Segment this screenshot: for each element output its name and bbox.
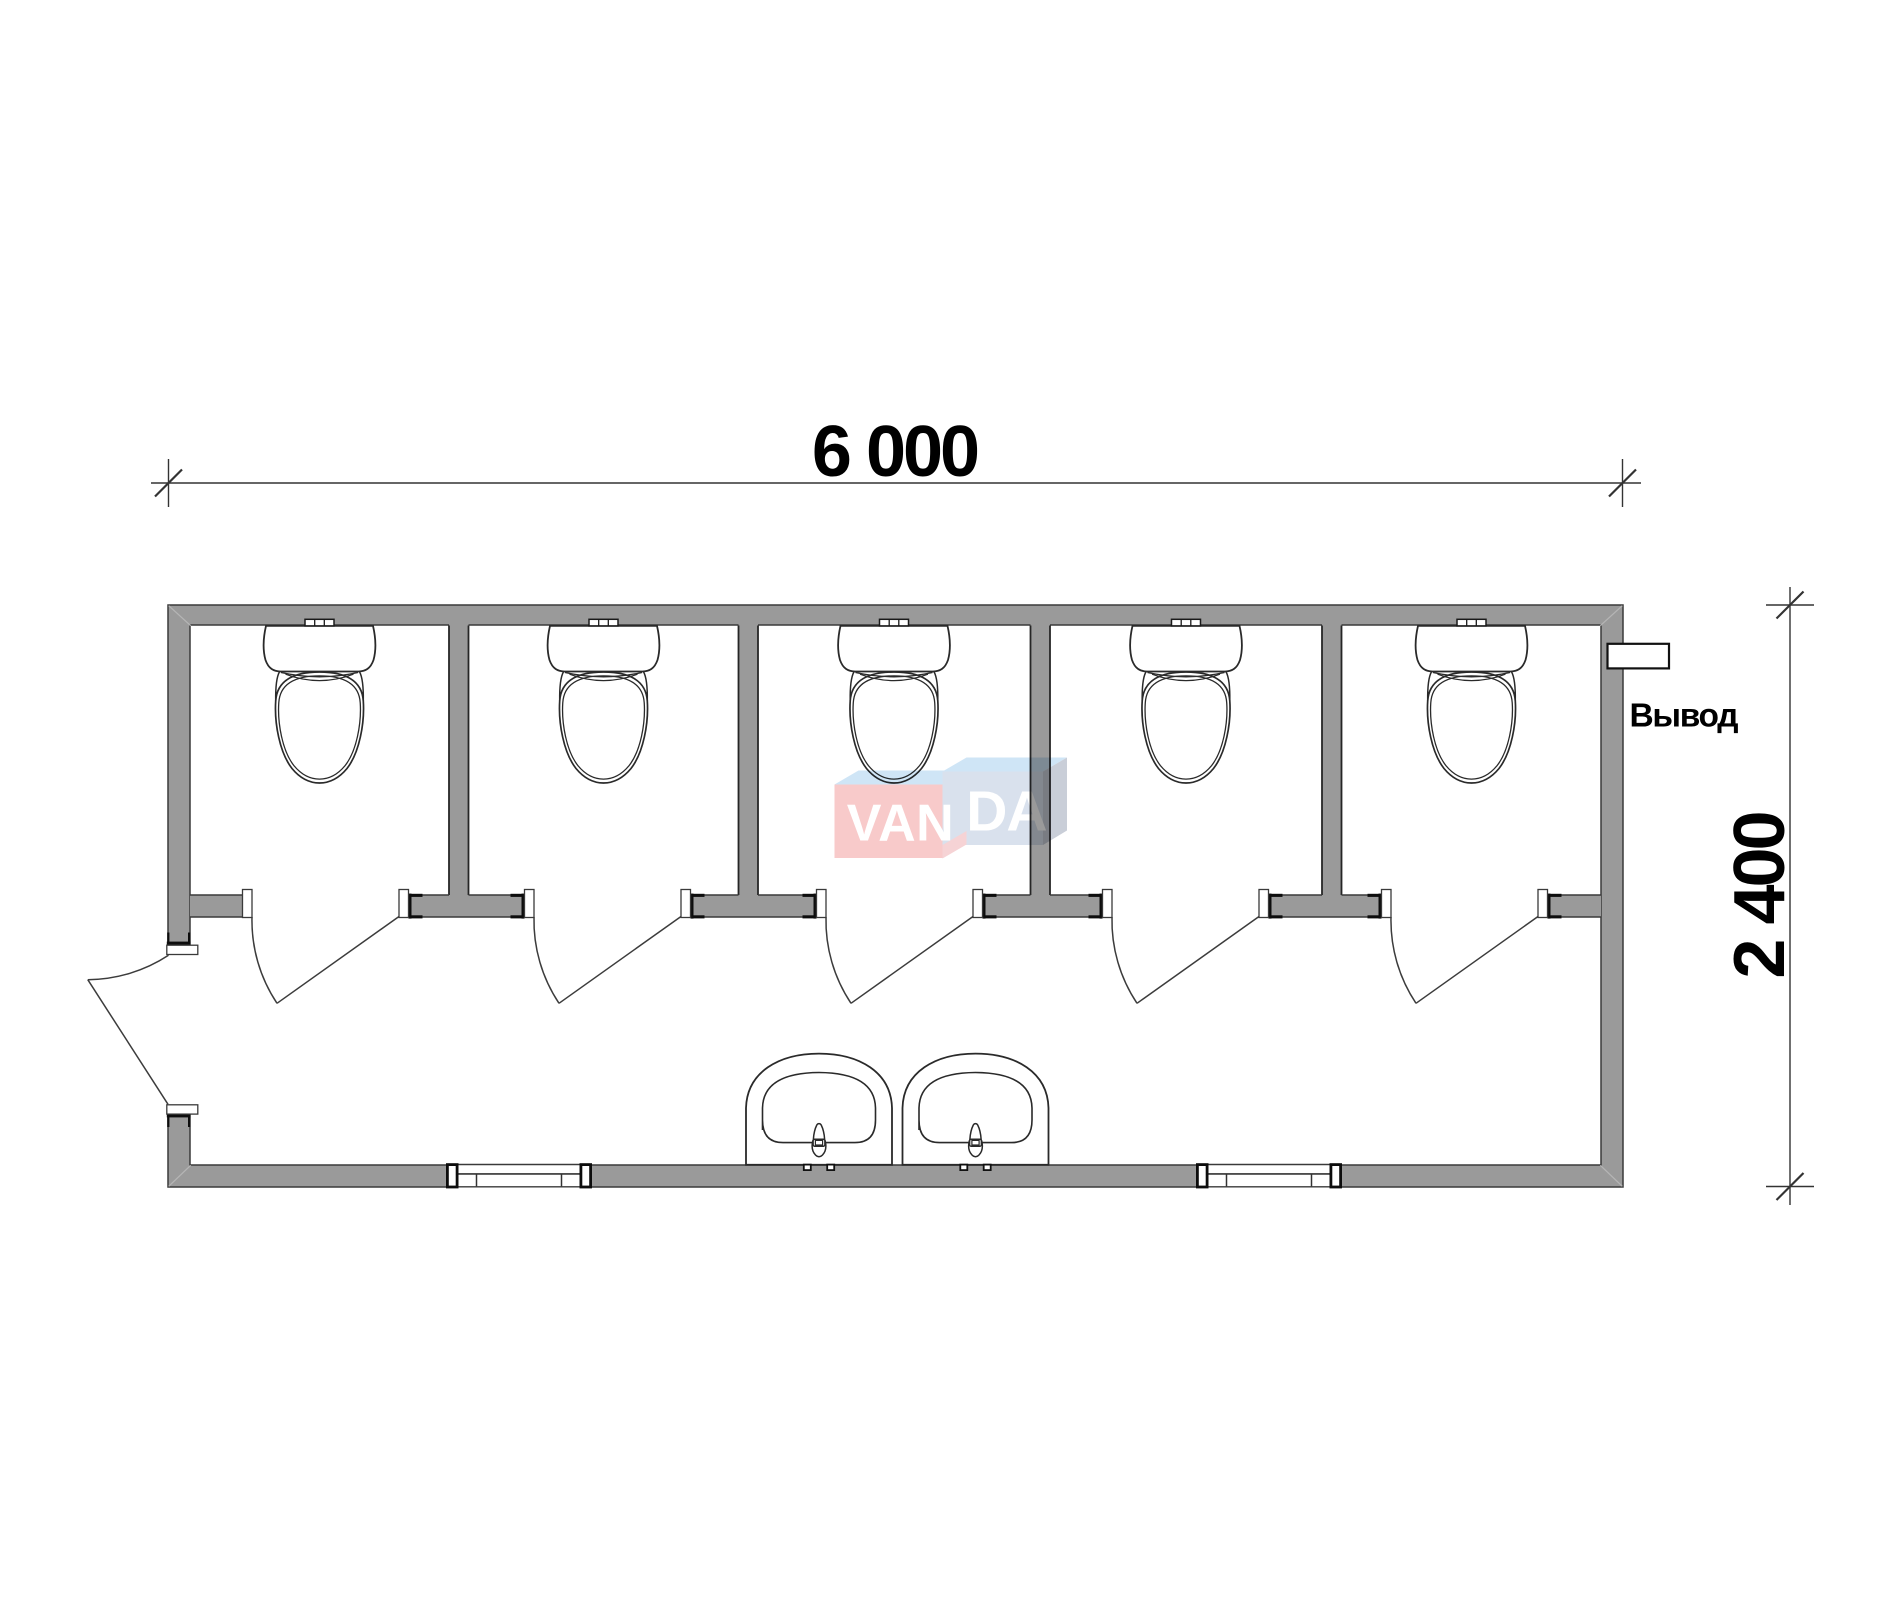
svg-text:Вывод: Вывод [1630, 698, 1739, 735]
svg-text:VAN: VAN [847, 795, 954, 853]
svg-text:2 400: 2 400 [1720, 812, 1800, 978]
svg-text:6 000: 6 000 [812, 412, 978, 492]
svg-text:DA: DA [966, 780, 1046, 844]
